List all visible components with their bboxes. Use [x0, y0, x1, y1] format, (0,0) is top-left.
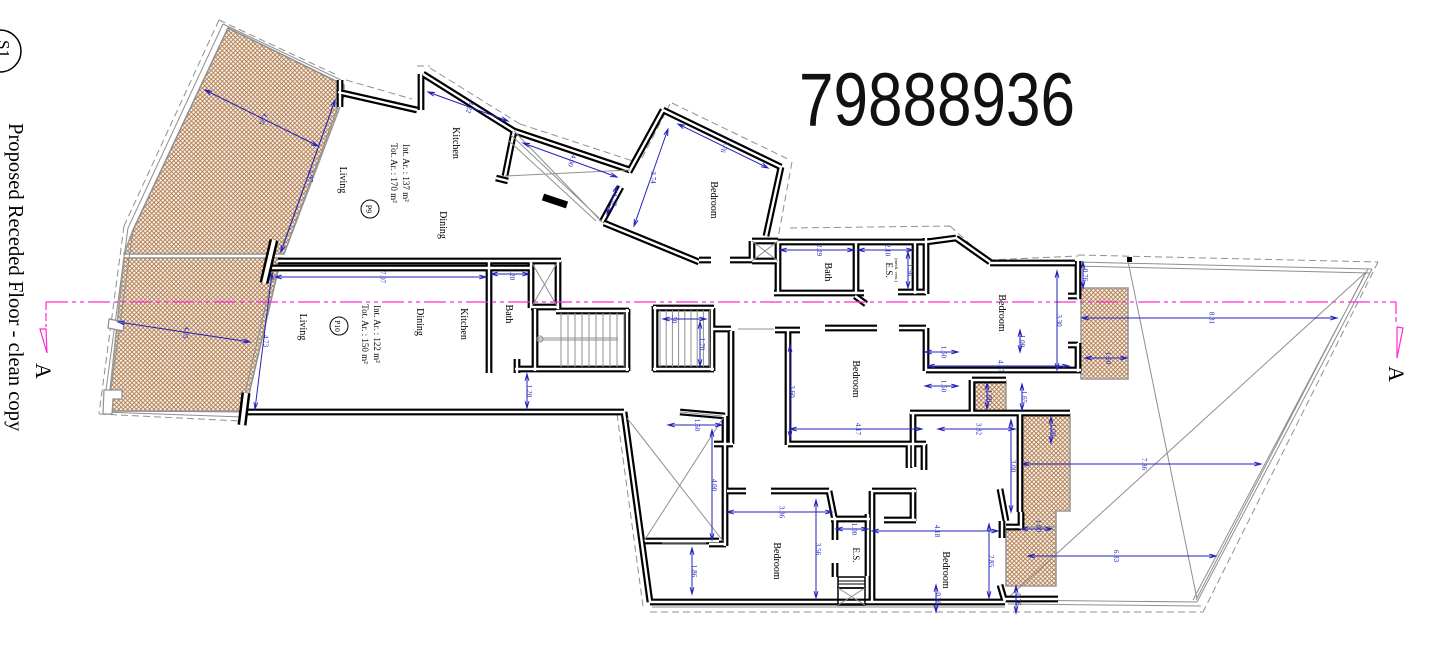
svg-text:4.73: 4.73 — [262, 335, 270, 348]
svg-text:2.10: 2.10 — [884, 244, 892, 257]
svg-text:S1: S1 — [0, 40, 13, 58]
svg-text:Living: Living — [337, 167, 348, 194]
svg-text:Tot. Ar. : 150 m²: Tot. Ar. : 150 m² — [360, 304, 370, 364]
svg-text:7.07: 7.07 — [379, 271, 387, 284]
svg-text:1.60: 1.60 — [1104, 352, 1112, 365]
svg-text:3.32: 3.32 — [975, 423, 983, 436]
svg-text:3.60: 3.60 — [788, 385, 796, 398]
svg-text:Dining: Dining — [414, 308, 425, 336]
svg-text:Kitchen: Kitchen — [458, 308, 469, 340]
svg-text:P9: P9 — [364, 205, 373, 213]
svg-text:0.76: 0.76 — [934, 592, 942, 605]
svg-text:.50: .50 — [670, 315, 678, 324]
svg-text:7.86: 7.86 — [1140, 458, 1148, 471]
svg-text:1.00: 1.00 — [1035, 520, 1043, 533]
svg-text:A: A — [1384, 366, 1409, 382]
svg-text:1.20: 1.20 — [508, 268, 516, 281]
svg-text:1.70: 1.70 — [698, 338, 706, 351]
svg-text:Int. Ar. : 137 m²: Int. Ar. : 137 m² — [401, 144, 411, 202]
svg-text:5.97: 5.97 — [306, 170, 314, 183]
svg-text:Bedroom: Bedroom — [850, 360, 861, 397]
svg-text:1.86: 1.86 — [690, 565, 698, 578]
svg-text:0.76: 0.76 — [1081, 269, 1089, 282]
svg-text:8.31: 8.31 — [1208, 312, 1216, 325]
svg-text:Tot. Ar. : 170 m²: Tot. Ar. : 170 m² — [389, 143, 399, 203]
svg-text:1.50: 1.50 — [940, 380, 948, 393]
svg-text:3.74: 3.74 — [649, 171, 657, 184]
svg-text:Living: Living — [297, 314, 308, 341]
svg-text:Bath: Bath — [503, 305, 514, 324]
svg-text:Bedroom: Bedroom — [771, 542, 782, 579]
svg-text:1.00: 1.00 — [850, 523, 858, 536]
svg-text:Proposed Receded Floor - clean: Proposed Receded Floor - clean copy — [4, 123, 26, 432]
svg-text:A: A — [31, 363, 56, 379]
svg-text:1.20: 1.20 — [525, 385, 533, 398]
svg-text:3.56: 3.56 — [814, 543, 822, 556]
svg-text:2.85: 2.85 — [987, 555, 995, 568]
svg-text:6.83: 6.83 — [1112, 550, 1120, 563]
svg-text:1.50: 1.50 — [940, 346, 948, 359]
svg-text:4.18: 4.18 — [933, 525, 941, 538]
svg-text:1.65: 1.65 — [1020, 391, 1028, 404]
svg-text:Bedroom: Bedroom — [940, 551, 951, 588]
svg-text:4.00: 4.00 — [710, 479, 718, 492]
svg-text:1.50: 1.50 — [693, 419, 701, 432]
svg-text:1.00: 1.00 — [985, 390, 993, 403]
svg-text:E.S.: E.S. — [884, 262, 894, 277]
svg-text:Kitchen: Kitchen — [450, 127, 461, 159]
svg-text:Bath: Bath — [822, 263, 833, 282]
svg-text:3.00: 3.00 — [1009, 460, 1017, 473]
svg-text:2.29: 2.29 — [815, 244, 823, 257]
svg-text:1.50: 1.50 — [610, 194, 618, 207]
svg-text:(mech. vent.): (mech. vent.) — [894, 258, 899, 282]
svg-text:Bedroom: Bedroom — [708, 181, 719, 218]
svg-text:0.76: 0.76 — [1014, 593, 1022, 606]
svg-text:79888936: 79888936 — [799, 58, 1075, 142]
svg-text:4.17: 4.17 — [854, 423, 862, 436]
svg-text:3.30: 3.30 — [1055, 314, 1063, 327]
svg-text:1.56: 1.56 — [906, 264, 914, 277]
svg-text:P10: P10 — [333, 320, 342, 332]
svg-text:1.00: 1.00 — [1018, 335, 1026, 348]
svg-text:E.S.: E.S. — [851, 547, 861, 562]
svg-text:1.00: 1.00 — [1049, 424, 1057, 437]
svg-text:3.36: 3.36 — [778, 506, 786, 519]
svg-text:Bedroom: Bedroom — [996, 294, 1007, 331]
svg-text:Dining: Dining — [437, 211, 448, 239]
svg-text:Int. Ar. : 122 m²: Int. Ar. : 122 m² — [372, 305, 382, 363]
svg-text:4.77: 4.77 — [997, 360, 1005, 373]
